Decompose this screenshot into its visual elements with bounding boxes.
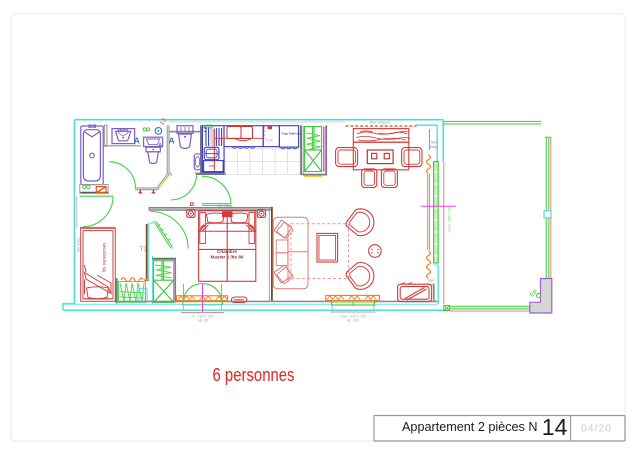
svg-text:Mur indigo: Mur indigo — [218, 204, 233, 208]
svg-text:14: 14 — [542, 414, 568, 440]
svg-text:A: A — [134, 136, 140, 146]
svg-text:lits superposés: lits superposés — [102, 242, 107, 272]
svg-text:Mur beige: Mur beige — [77, 238, 81, 252]
svg-text:beige: beige — [430, 145, 438, 149]
svg-text:A: A — [158, 143, 163, 150]
svg-text:all : 90: all : 90 — [198, 319, 209, 323]
svg-text:Coul : 300 x 215: Coul : 300 x 215 — [448, 206, 452, 232]
svg-text:Mur briques: Mur briques — [369, 119, 390, 124]
svg-text:04/20: 04/20 — [581, 423, 611, 435]
svg-text:4 m²: 4 m² — [266, 139, 274, 143]
svg-text:Frigo Table top: Frigo Table top — [282, 132, 302, 136]
svg-text:all : 100: all : 100 — [347, 319, 360, 323]
svg-text:Master 2 lits 80: Master 2 lits 80 — [211, 255, 244, 260]
svg-text:6 personnes: 6 personnes — [213, 365, 295, 385]
svg-text:Chambre: Chambre — [217, 249, 237, 254]
svg-text:Appartement 2 pièces N: Appartement 2 pièces N — [402, 419, 538, 434]
